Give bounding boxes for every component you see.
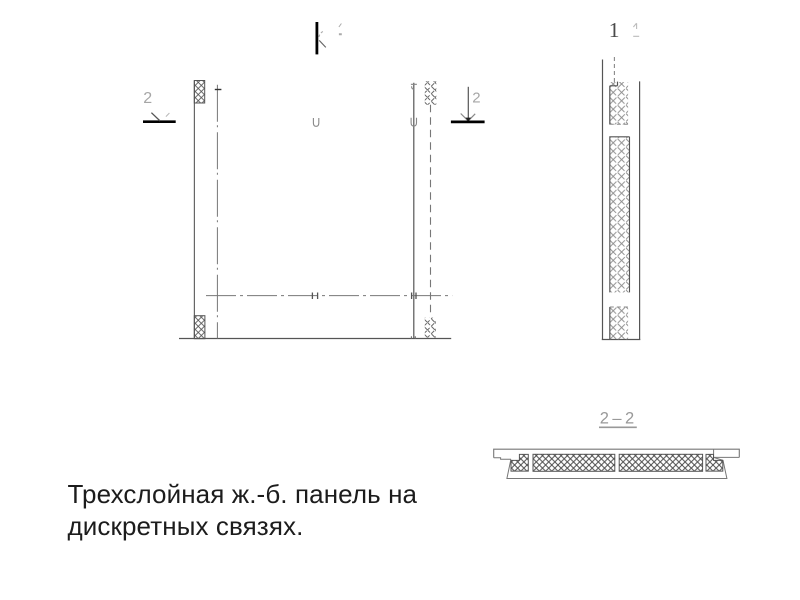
svg-text:2: 2 <box>143 90 152 107</box>
svg-text:2: 2 <box>472 90 480 107</box>
svg-text:2–2: 2–2 <box>600 410 638 428</box>
svg-text:1: 1 <box>609 18 620 42</box>
